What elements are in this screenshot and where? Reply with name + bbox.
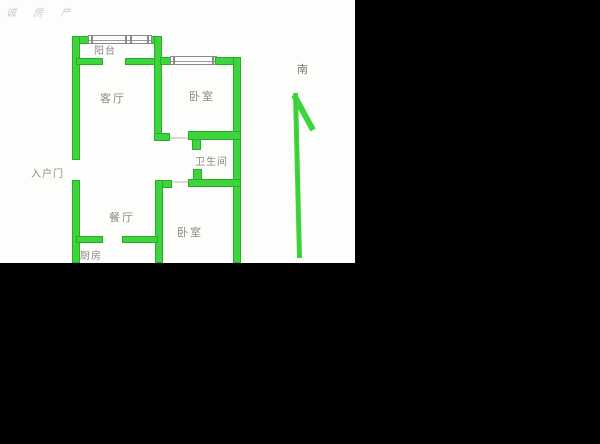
- room-label-bedroom2: 卧室: [177, 227, 203, 238]
- room-label-living: 客厅: [100, 93, 126, 104]
- room-label-entrance: 入户门: [31, 170, 64, 180]
- room-label-balcony: 阳台: [94, 47, 116, 57]
- window-symbol: [170, 56, 217, 65]
- wall: [72, 36, 80, 160]
- wall: [233, 57, 241, 263]
- wall: [76, 236, 103, 243]
- wall: [154, 36, 162, 141]
- watermark-text: 诚 房 产: [6, 4, 77, 19]
- wall: [154, 133, 170, 141]
- south-label: 南: [297, 64, 308, 75]
- south-compass: 南: [286, 62, 322, 262]
- wall: [192, 139, 201, 150]
- wall: [188, 179, 241, 187]
- wall: [72, 180, 80, 263]
- window-symbol: [88, 35, 152, 44]
- room-label-dining: 餐厅: [109, 212, 135, 223]
- floorplan-image: 诚 房 产: [0, 0, 600, 444]
- plan-area: 诚 房 产: [0, 0, 355, 263]
- wall: [155, 180, 163, 263]
- room-label-bedroom1: 卧室: [189, 91, 215, 102]
- wall: [122, 236, 158, 243]
- south-arrow-icon: [286, 62, 322, 262]
- door-threshold: [172, 181, 188, 183]
- door-threshold: [170, 137, 188, 139]
- room-label-kitchen: 厨房: [80, 252, 102, 262]
- wall: [193, 169, 202, 180]
- wall: [76, 58, 103, 65]
- room-label-bathroom: 卫生间: [195, 158, 228, 168]
